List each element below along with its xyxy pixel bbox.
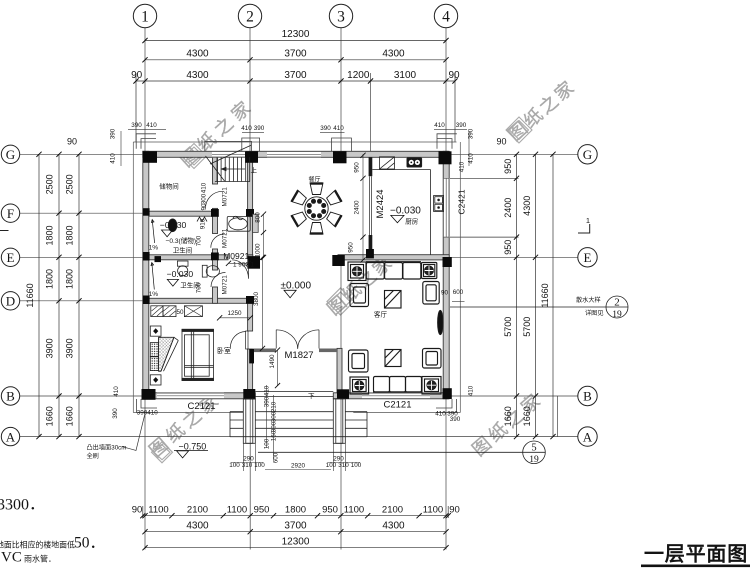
svg-text:−0.030: −0.030 [390, 206, 421, 217]
svg-text:410: 410 [434, 122, 445, 129]
svg-text:950: 950 [503, 159, 513, 174]
svg-text:餐厅: 餐厅 [308, 176, 320, 184]
svg-text:下: 下 [308, 392, 315, 400]
svg-text:E: E [584, 250, 592, 265]
svg-text:3100: 3100 [394, 70, 417, 81]
svg-text:5700: 5700 [522, 317, 532, 337]
svg-text:1200: 1200 [347, 70, 370, 81]
svg-text:A: A [6, 429, 16, 444]
svg-text:160: 160 [271, 430, 278, 441]
svg-text:390: 390 [450, 416, 461, 423]
svg-text:2400: 2400 [503, 198, 513, 218]
svg-text:1660: 1660 [45, 406, 55, 426]
svg-text:410: 410 [459, 161, 466, 172]
svg-text:4300: 4300 [186, 521, 209, 532]
svg-text:1%: 1% [149, 245, 159, 252]
svg-text:2: 2 [614, 297, 620, 309]
svg-text:B: B [583, 389, 592, 404]
svg-text:3900: 3900 [45, 338, 55, 358]
svg-text:600: 600 [453, 289, 464, 296]
svg-text:50．: 50． [74, 535, 105, 552]
svg-text:50: 50 [176, 309, 184, 316]
svg-text:410: 410 [468, 385, 475, 396]
svg-text:1100: 1100 [344, 505, 364, 516]
svg-text:390: 390 [254, 125, 265, 132]
svg-text:3700: 3700 [284, 70, 307, 81]
svg-text:410: 410 [147, 409, 158, 416]
svg-text:3: 3 [337, 8, 345, 25]
svg-text:390: 390 [131, 122, 142, 129]
svg-text:390: 390 [456, 122, 467, 129]
svg-text:1250: 1250 [227, 310, 242, 317]
svg-text:410: 410 [146, 122, 157, 129]
svg-text:390: 390 [110, 128, 117, 139]
svg-text:一层平面图: 一层平面图 [644, 543, 748, 566]
svg-text:3800: 3800 [253, 292, 260, 307]
svg-text:1800: 1800 [45, 225, 55, 245]
svg-text:410: 410 [333, 125, 344, 132]
svg-text:700: 700 [196, 282, 203, 293]
svg-text:A: A [583, 429, 593, 444]
svg-text:4: 4 [442, 8, 450, 25]
svg-text:910: 910 [200, 218, 207, 229]
svg-text:E: E [7, 250, 15, 265]
svg-text:1: 1 [141, 8, 149, 25]
svg-text:5700: 5700 [503, 317, 513, 337]
svg-text:300: 300 [201, 193, 208, 204]
svg-text:410: 410 [113, 386, 120, 397]
svg-text:3700: 3700 [284, 49, 307, 60]
svg-text:1100: 1100 [423, 505, 443, 516]
svg-text:1800: 1800 [285, 505, 306, 516]
svg-text:2100: 2100 [187, 505, 208, 516]
svg-text:4300: 4300 [186, 49, 209, 60]
svg-text:90: 90 [441, 290, 449, 297]
svg-text:G: G [583, 147, 592, 162]
svg-text:100: 100 [351, 462, 362, 469]
svg-text:210: 210 [271, 401, 278, 412]
svg-text:3900: 3900 [65, 338, 75, 358]
svg-text:M1827: M1827 [285, 350, 314, 361]
svg-text:410: 410 [241, 125, 252, 132]
svg-text:950: 950 [503, 240, 513, 255]
svg-text:VC: VC [1, 550, 22, 566]
svg-text:2920: 2920 [291, 462, 306, 469]
svg-text:310: 310 [338, 462, 349, 469]
svg-text:1660: 1660 [65, 406, 75, 426]
svg-text:M0721: M0721 [222, 228, 229, 248]
svg-text:950: 950 [322, 505, 338, 516]
svg-text:B: B [6, 389, 15, 404]
svg-text:1000: 1000 [255, 243, 262, 258]
svg-text:详图见: 详图见 [585, 309, 604, 317]
svg-text:C2421: C2421 [456, 189, 466, 214]
svg-text:300: 300 [271, 411, 278, 422]
svg-text:G: G [6, 147, 15, 162]
svg-text:100: 100 [264, 438, 271, 449]
svg-text:12300: 12300 [282, 537, 310, 548]
svg-text:11660: 11660 [25, 283, 35, 307]
svg-text:地面比相应的楼地面低: 地面比相应的楼地面低 [0, 540, 75, 550]
svg-text:410: 410 [435, 411, 446, 418]
svg-text:M0921: M0921 [223, 251, 249, 261]
svg-text:2: 2 [246, 8, 254, 25]
svg-text:19: 19 [529, 455, 539, 465]
svg-text:700: 700 [196, 235, 203, 246]
svg-text:310: 310 [242, 462, 253, 469]
svg-text:1660: 1660 [503, 406, 513, 426]
svg-text:厨房: 厨房 [405, 217, 418, 226]
svg-text:C2121: C2121 [188, 401, 216, 412]
svg-text:2500: 2500 [45, 174, 55, 194]
svg-text:−0.030: −0.030 [160, 220, 187, 230]
svg-text:90: 90 [132, 505, 143, 516]
svg-text:卧室: 卧室 [217, 346, 231, 355]
svg-text:950: 950 [348, 242, 355, 253]
svg-text:2100: 2100 [382, 505, 403, 516]
svg-text:C2121: C2121 [384, 400, 412, 411]
svg-text:950: 950 [254, 505, 270, 516]
svg-text:19: 19 [612, 310, 622, 320]
svg-text:1490: 1490 [269, 354, 276, 369]
svg-text:M2424: M2424 [375, 189, 386, 218]
svg-text:3700: 3700 [284, 521, 307, 532]
svg-text:410: 410 [264, 385, 271, 396]
svg-text:卫生间: 卫生间 [173, 245, 193, 254]
svg-text:90: 90 [448, 70, 460, 81]
svg-text:1660: 1660 [522, 406, 532, 426]
svg-text:1800: 1800 [65, 269, 75, 289]
svg-text:2500: 2500 [65, 174, 75, 194]
svg-text:410: 410 [468, 153, 475, 164]
svg-text:3300．: 3300． [0, 497, 45, 514]
svg-text:1800: 1800 [45, 269, 55, 289]
svg-text:410: 410 [110, 153, 117, 164]
svg-text:散水大样: 散水大样 [576, 296, 601, 304]
svg-text:410: 410 [201, 182, 208, 193]
svg-text:90: 90 [131, 70, 143, 81]
svg-text:90: 90 [201, 203, 208, 211]
svg-text:储物间: 储物间 [159, 182, 179, 191]
svg-text:−0.030: −0.030 [167, 269, 194, 279]
svg-text:90: 90 [67, 137, 77, 147]
svg-text:2400: 2400 [354, 200, 361, 215]
svg-text:1100: 1100 [227, 505, 247, 516]
svg-text:−0.750: −0.750 [179, 441, 207, 451]
svg-text:950: 950 [354, 162, 361, 173]
svg-text:−0.3(储物): −0.3(储物) [166, 236, 197, 245]
svg-text:90: 90 [449, 505, 460, 516]
svg-text:1 900 1: 1 900 1 [233, 262, 255, 269]
svg-text:4300: 4300 [382, 49, 405, 60]
svg-text:上: 上 [251, 166, 258, 175]
svg-text:1800: 1800 [65, 225, 75, 245]
svg-text:390: 390 [112, 408, 119, 419]
svg-text:F: F [7, 206, 14, 221]
svg-text:D: D [6, 294, 15, 309]
svg-text:4300: 4300 [522, 196, 532, 216]
svg-text:全刷: 全刷 [87, 452, 99, 460]
svg-text:M0721: M0721 [222, 187, 229, 207]
svg-text:800: 800 [255, 212, 262, 223]
svg-text:雨水管．: 雨水管． [24, 554, 56, 564]
svg-text:390: 390 [264, 396, 271, 407]
svg-text:390: 390 [320, 125, 331, 132]
svg-text:300: 300 [271, 421, 278, 432]
svg-text:M0721: M0721 [222, 275, 229, 295]
svg-text:客厅: 客厅 [374, 310, 388, 319]
svg-text:100: 100 [254, 462, 265, 469]
svg-text:100: 100 [229, 462, 240, 469]
svg-text:凸出墙面30cm: 凸出墙面30cm [87, 443, 127, 451]
svg-text:11660: 11660 [540, 283, 550, 307]
svg-text:390: 390 [137, 409, 148, 416]
svg-text:1%: 1% [149, 291, 159, 298]
svg-text:12300: 12300 [282, 29, 310, 40]
svg-text:100: 100 [326, 462, 337, 469]
svg-text:±0.000: ±0.000 [281, 280, 312, 291]
svg-text:1100: 1100 [148, 505, 168, 516]
svg-text:90: 90 [496, 137, 506, 147]
svg-text:4300: 4300 [186, 70, 209, 81]
svg-text:4300: 4300 [382, 521, 405, 532]
svg-text:5: 5 [531, 442, 536, 453]
svg-text:1: 1 [586, 216, 590, 225]
svg-text:390: 390 [468, 128, 475, 139]
